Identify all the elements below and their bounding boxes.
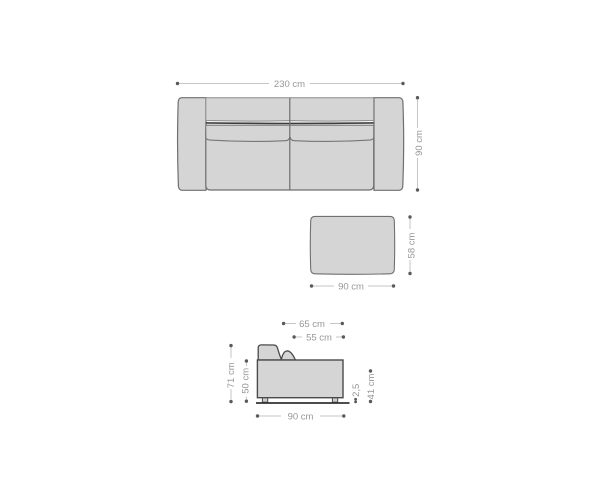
- svg-text:2,5: 2,5: [351, 384, 362, 397]
- svg-text:90 cm: 90 cm: [338, 282, 364, 293]
- svg-text:90 cm: 90 cm: [288, 412, 314, 423]
- svg-text:90 cm: 90 cm: [414, 130, 425, 156]
- svg-text:58 cm: 58 cm: [407, 232, 418, 258]
- svg-text:50 cm: 50 cm: [241, 368, 252, 394]
- svg-text:230 cm: 230 cm: [274, 79, 305, 90]
- svg-text:65 cm: 65 cm: [299, 319, 325, 330]
- svg-text:71 cm: 71 cm: [226, 362, 237, 388]
- svg-text:55 cm: 55 cm: [306, 333, 332, 344]
- svg-text:41 cm: 41 cm: [366, 373, 377, 399]
